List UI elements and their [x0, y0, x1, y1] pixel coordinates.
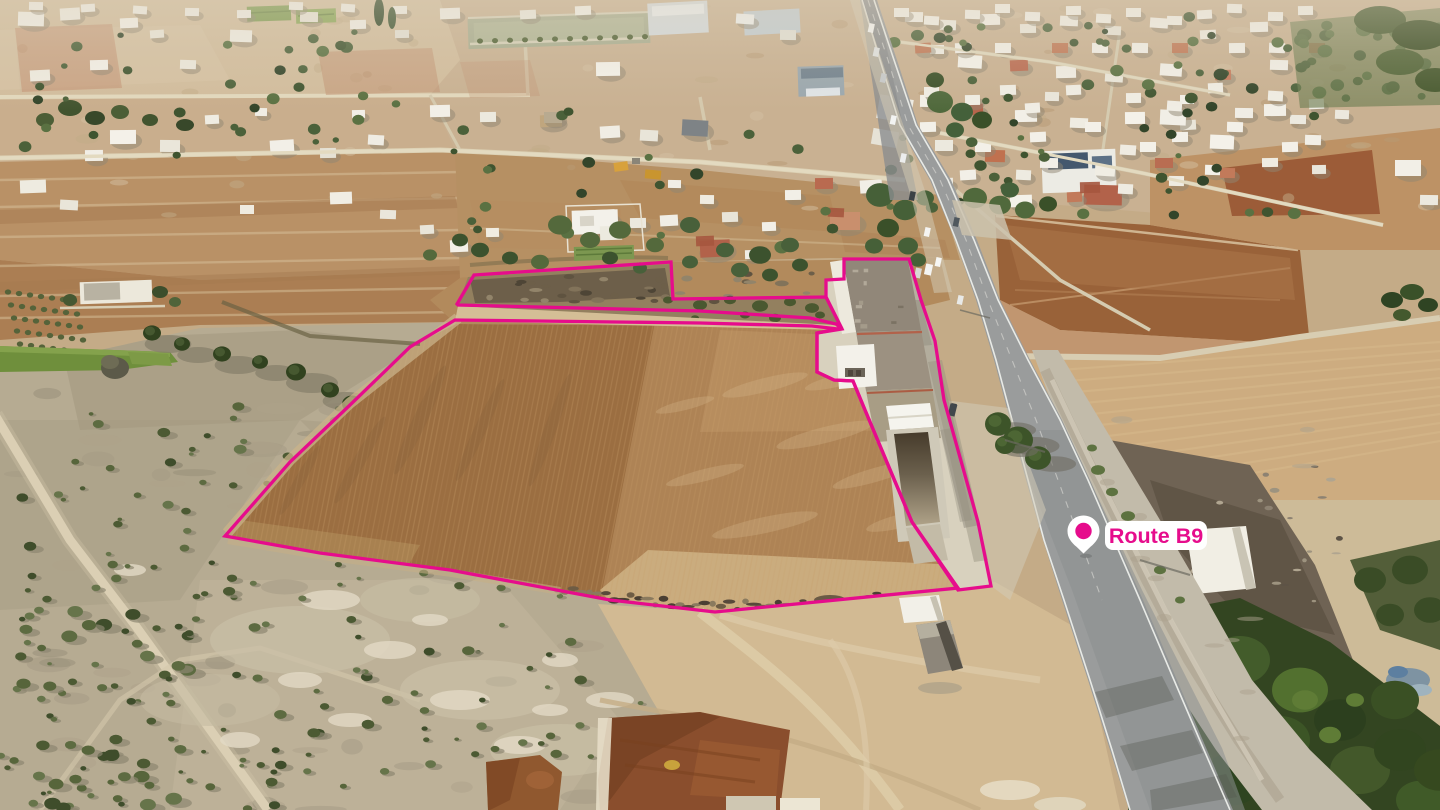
svg-text:Route B9: Route B9: [1109, 524, 1203, 548]
